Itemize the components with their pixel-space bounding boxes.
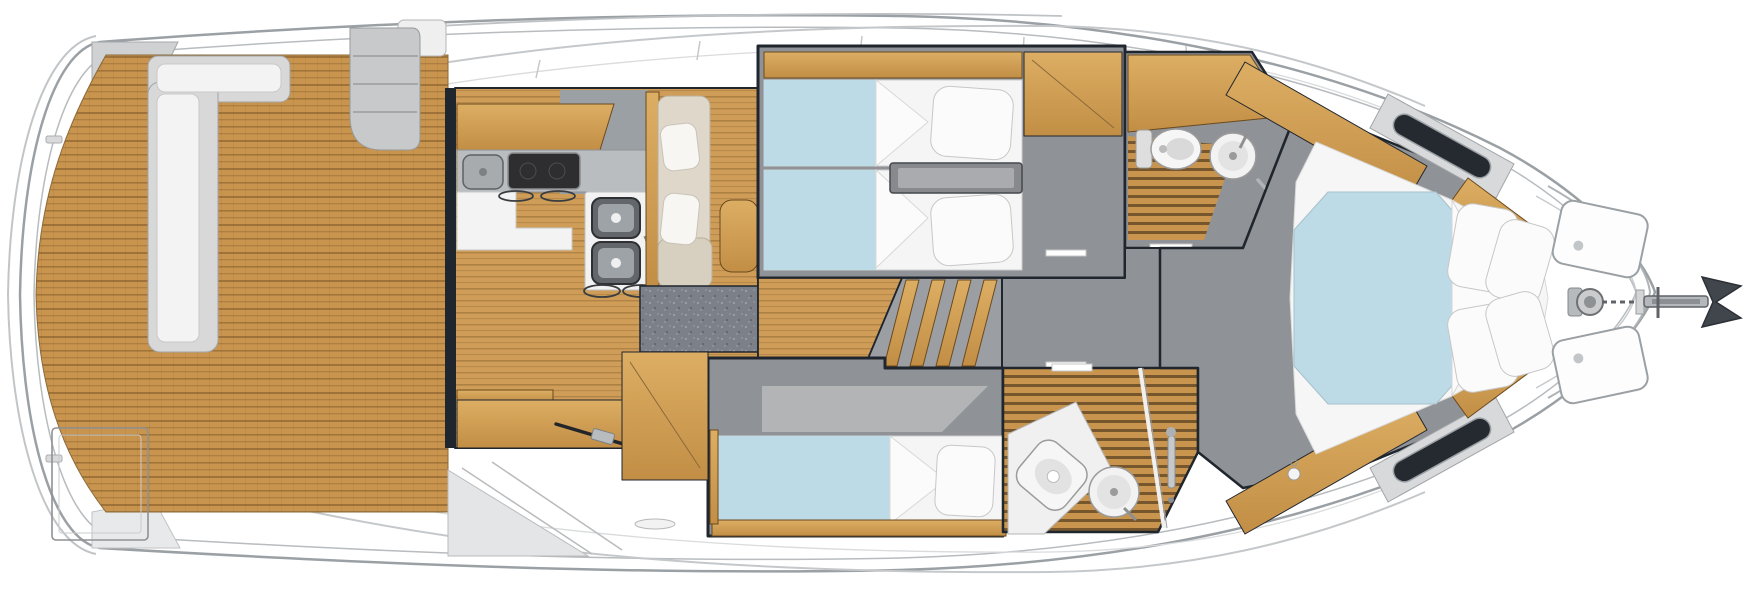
twin-headboard — [764, 52, 1022, 78]
floorplan-svg: Motor yacht interior floor plan — top-do… — [0, 0, 1762, 598]
bed-pillow — [934, 445, 996, 518]
two-burner-stove — [508, 153, 580, 189]
dinette-bench-back — [646, 92, 659, 288]
shower-room: Shower room with toilet, washbasin and t… — [1003, 364, 1198, 534]
anchor-windlass — [1568, 288, 1603, 316]
twin-guest-cabin: Guest cabin with two twin berths — [758, 46, 1125, 278]
foredeck: Foredeck with deck hatches, windlass, ch… — [1551, 199, 1741, 406]
wardrobe — [1024, 52, 1122, 136]
door-threshold — [1046, 250, 1086, 256]
bed-pillow — [930, 193, 1015, 266]
yacht-floorplan: Motor yacht interior floor plan — top-do… — [0, 0, 1762, 598]
bed-frame — [712, 520, 1006, 536]
bed-pillow — [930, 85, 1015, 160]
sliding-door-track — [445, 88, 455, 448]
dinette-pillow — [659, 122, 700, 172]
galley-hand-sink — [463, 155, 503, 189]
dinette-pillow — [659, 192, 700, 245]
bedside-shelf — [890, 163, 1022, 193]
round-washbasin — [1210, 133, 1256, 179]
single-berth — [710, 430, 1006, 536]
galley-breakfast-bar — [457, 104, 614, 150]
twin-berth-port — [764, 80, 1022, 166]
dinette-table — [720, 200, 758, 272]
stairwell-carpet — [640, 286, 758, 352]
dinette-corner-cushion — [658, 238, 712, 288]
bed-trim — [710, 430, 718, 524]
door-threshold — [1052, 364, 1092, 371]
cabin-wardrobe — [622, 352, 708, 480]
toilet — [1136, 129, 1201, 169]
